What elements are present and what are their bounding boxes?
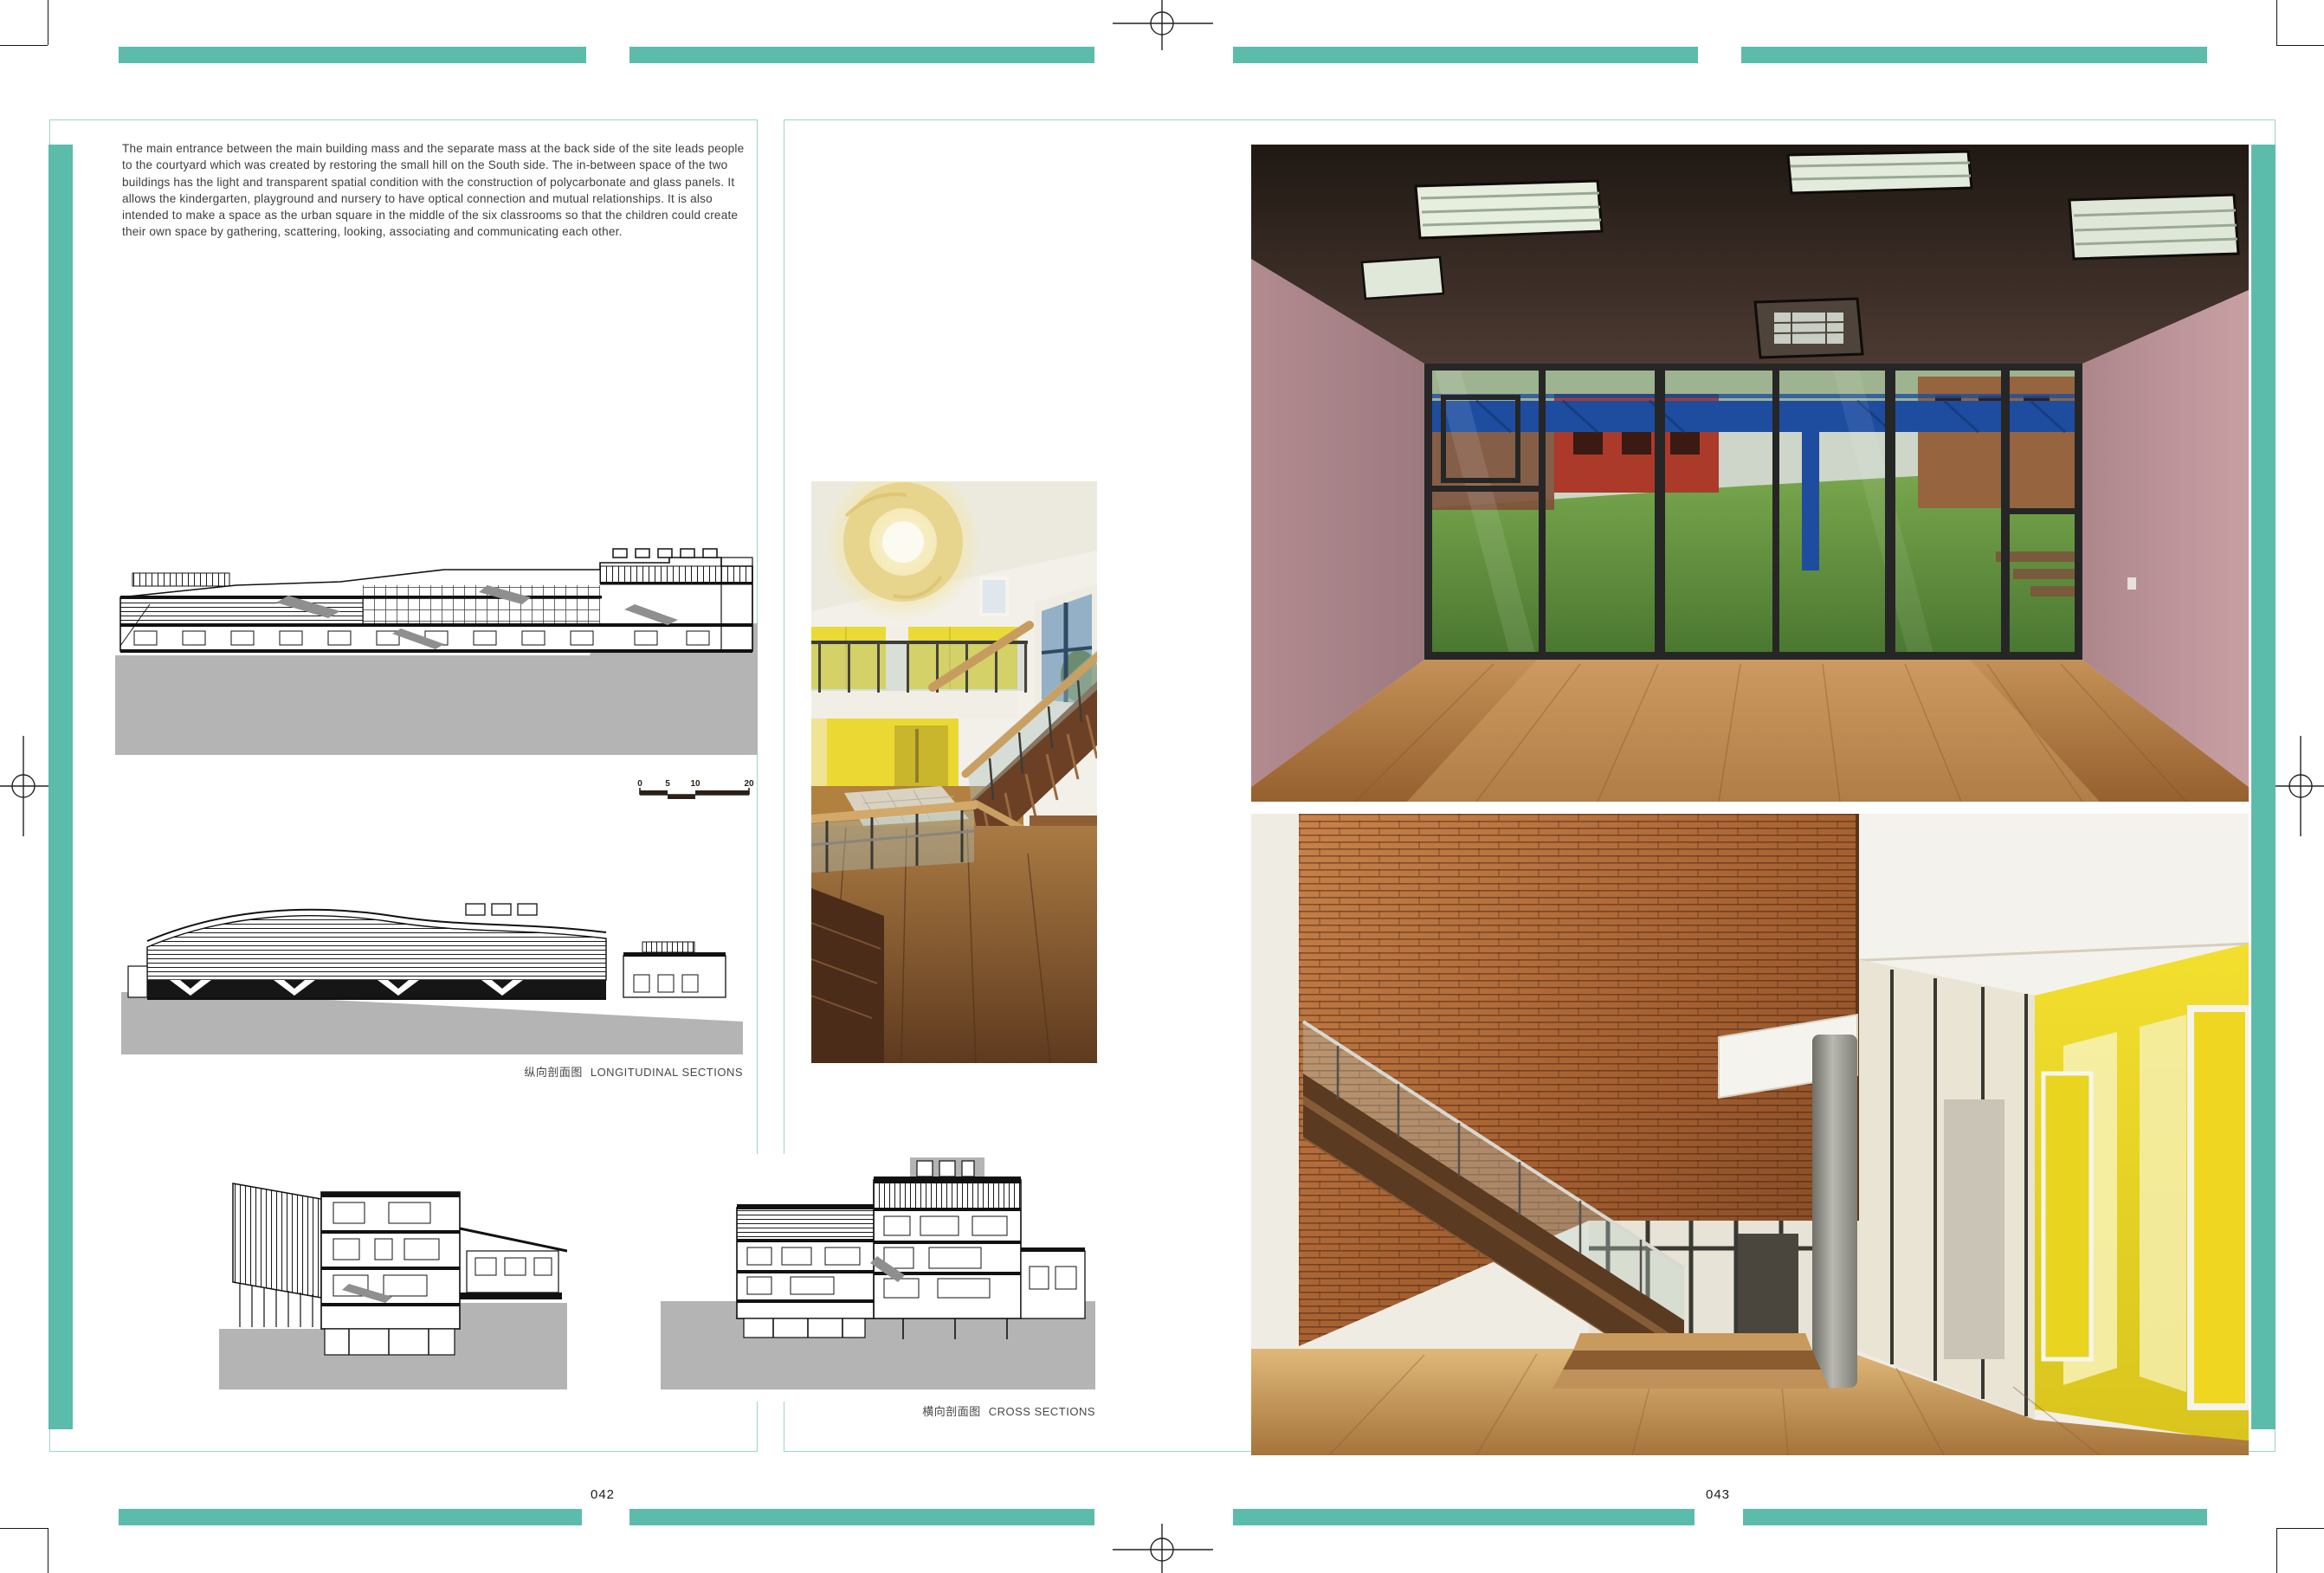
crop-mark-bottom-right-h [2276, 1528, 2324, 1529]
svg-text:10: 10 [690, 779, 700, 789]
page-number-right: 043 [1685, 1487, 1751, 1502]
top-bar-1 [119, 47, 586, 63]
crop-mark-bottom-left-h [0, 1528, 48, 1529]
registration-mark-left [0, 736, 50, 836]
cross-section-drawing-1 [219, 1154, 567, 1402]
top-bar-4 [1741, 47, 2207, 63]
bottom-bar-2 [629, 1509, 1094, 1525]
top-bar-2 [629, 47, 1094, 63]
longitudinal-section-drawing-2 [121, 893, 743, 1056]
bottom-bar-4 [1743, 1509, 2207, 1525]
crop-mark-top-left-h [0, 45, 48, 46]
svg-text:5: 5 [665, 779, 670, 789]
longitudinal-section-drawing-1 [115, 542, 758, 757]
photo-stairwell [811, 481, 1097, 1063]
svg-text:0: 0 [637, 779, 642, 789]
intro-paragraph: The main entrance between the main build… [122, 140, 758, 241]
book-spread: { "spread": { "left_page_number": "042",… [0, 0, 2324, 1573]
crop-mark-top-right-v [2276, 0, 2277, 45]
right-edge-bar [2251, 145, 2276, 1429]
caption-cross-sections: 横向剖面图CROSS SECTIONS [723, 1402, 1095, 1419]
cross-section-drawing-2 [661, 1154, 1095, 1402]
bottom-bar-3 [1233, 1509, 1695, 1525]
svg-text:20: 20 [744, 779, 754, 789]
top-bar-3 [1233, 47, 1698, 63]
photo-classroom-courtyard [1251, 145, 2249, 802]
caption-longitudinal-sections: 纵向剖面图LONGITUDINAL SECTIONS [371, 1063, 743, 1080]
caption-cross-en: CROSS SECTIONS [989, 1405, 1095, 1418]
caption-cross-zh: 横向剖面图 [922, 1405, 981, 1418]
crop-mark-bottom-left-v [48, 1528, 48, 1573]
scale-bar: 0 5 10 20 [635, 776, 756, 803]
page-number-left: 042 [570, 1487, 636, 1502]
bottom-bar-1 [119, 1509, 582, 1525]
photo-hall-staircase [1251, 814, 2249, 1455]
registration-mark-right [2274, 736, 2324, 836]
registration-mark-bottom [1113, 1524, 1213, 1573]
left-edge-bar [48, 145, 73, 1429]
crop-mark-bottom-right-v [2276, 1528, 2277, 1573]
crop-mark-top-left-v [48, 0, 48, 45]
caption-longitudinal-en: LONGITUDINAL SECTIONS [591, 1066, 743, 1079]
caption-longitudinal-zh: 纵向剖面图 [524, 1066, 583, 1079]
crop-mark-top-right-h [2276, 45, 2324, 46]
registration-mark-top [1113, 0, 1213, 50]
